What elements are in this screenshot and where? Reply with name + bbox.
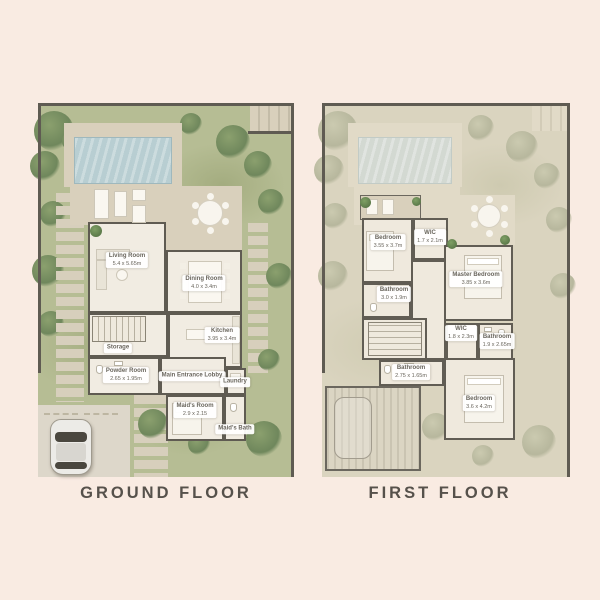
parking-line [44,413,78,415]
potted-plant [412,197,421,206]
sun-lounger [132,205,146,223]
room-name: Kitchen [208,328,237,336]
balcony-lounger [382,199,394,215]
swimming-pool [74,137,172,184]
gate-steps-faded [532,103,570,131]
room-label-bathroom-1: Bathroom 3.0 x 1.9m [377,286,411,302]
boundary-wall-left [38,103,41,373]
room-name: Bathroom [483,334,512,342]
first-floor-title: FIRST FLOOR [369,484,512,503]
room-label-bedroom-2: Bedroom 3.6 x 4.2m [463,395,495,411]
outdoor-chairs [207,210,214,217]
car-rear-window [55,462,87,469]
tree-faded [550,273,576,299]
entrance-gate-steps [250,103,291,131]
room-dims: 3.55 x 3.7m [374,243,403,249]
room-name: Storage [107,344,129,352]
room-dims: 3.95 x 3.4m [208,336,237,342]
tree-faded [314,155,344,185]
room-name: Bedroom [466,396,492,404]
terrace-chairs [486,213,493,220]
pillow [467,378,501,385]
room-label-main-entrance-lobby: Main Entrance Lobby [159,371,226,381]
room-dims: 2.65 x 1.95m [106,376,146,382]
swimming-pool-faded [358,137,452,184]
potted-plant [500,235,510,245]
room-dims: 5.4 x 5.65m [109,261,145,267]
room-name: Maid's Room [176,403,213,411]
staircase [368,322,422,356]
parking-line [84,413,118,415]
room-dims: 1.8 x 2.3m [448,334,474,340]
coffee-table [116,269,128,281]
room-dims: 2.75 x 1.65m [395,373,427,379]
sun-lounger [94,189,109,219]
toilet [384,365,391,374]
room-name: Dining Room [185,276,222,284]
boundary-wall-right [567,103,570,477]
potted-plant [447,239,457,249]
room-label-maids-room: Maid's Room 2.9 x 2.15 [173,402,216,418]
pillow [467,258,499,265]
toilet [370,303,377,312]
room-name: WIC [417,230,443,238]
boundary-wall-left [322,103,325,373]
first-floor-plan: Bedroom 3.55 x 3.7m WIC 1.7 x 2.1m Maste… [322,103,570,477]
tree-faded [506,131,538,163]
car-top-view [50,419,92,475]
room-label-bathroom-3: Bathroom 2.75 x 1.65m [392,364,430,380]
room-name: Master Bedroom [452,272,499,280]
potted-plant [360,197,371,208]
room-label-dining-room: Dining Room 4.0 x 3.4m [182,275,225,291]
maids-bath [224,395,246,441]
gate-wall [248,131,294,134]
room-dims: 2.9 x 2.15 [176,411,213,417]
room-name: Bathroom [395,365,427,373]
room-label-wic-1: WIC 1.7 x 2.1m [414,229,446,245]
tree-faded [522,425,556,459]
tree [258,349,280,371]
room-dims: 3.85 x 3.6m [452,280,499,286]
room-label-master-bedroom: Master Bedroom 3.85 x 3.6m [449,271,502,287]
ground-floor-plan: Living Room 5.4 x 5.65m Dining Room 4.0 … [38,103,294,477]
room-name: Main Entrance Lobby [162,372,223,380]
room-label-bedroom-1: Bedroom 3.55 x 3.7m [371,234,406,250]
room-label-kitchen: Kitchen 3.95 x 3.4m [205,327,240,343]
staircase [92,316,146,342]
tree [216,125,250,159]
tree [258,189,284,215]
room-name: WIC [448,326,474,334]
sink [114,361,123,366]
room-label-living-room: Living Room 5.4 x 5.65m [106,252,148,268]
sun-lounger [114,191,127,217]
tree-faded [322,203,348,229]
potted-plant [90,225,102,237]
room-name: Powder Room [106,368,146,376]
room-name: Bedroom [374,235,403,243]
sink [484,327,492,332]
room-name: Bathroom [380,287,408,295]
ground-floor-title: GROUND FLOOR [80,484,252,503]
room-name: Maid's Bath [218,425,251,433]
tree [138,409,168,439]
boundary-wall-top [322,103,570,106]
room-label-wic-2: WIC 1.8 x 2.3m [445,325,477,341]
car-faded [334,397,372,459]
room-dims: 1.7 x 2.1m [417,238,443,244]
tree [266,263,292,289]
room-label-storage: Storage [104,343,132,353]
boundary-wall-top [38,103,294,106]
room-label-bathroom-2: Bathroom 1.9 x 2.65m [480,333,515,349]
room-dims: 1.9 x 2.65m [483,342,512,348]
tree [30,151,60,181]
room-dims: 3.6 x 4.2m [466,404,492,410]
room-label-powder-room: Powder Room 2.65 x 1.95m [103,367,149,383]
room-dims: 4.0 x 3.4m [185,284,222,290]
tree-faded [468,115,494,141]
toilet [230,403,237,412]
side-table [132,189,146,201]
tree [244,151,272,179]
room-name: Laundry [223,378,247,386]
room-label-maids-bath: Maid's Bath [215,424,254,434]
tree-faded [534,163,560,189]
car-roof [56,443,86,461]
room-dims: 3.0 x 1.9m [380,295,408,301]
room-label-laundry: Laundry [220,377,250,387]
tree [180,113,202,135]
boundary-wall-right [291,103,294,477]
car-windshield [55,432,87,442]
room-name: Living Room [109,253,145,261]
tree-faded [472,445,494,467]
